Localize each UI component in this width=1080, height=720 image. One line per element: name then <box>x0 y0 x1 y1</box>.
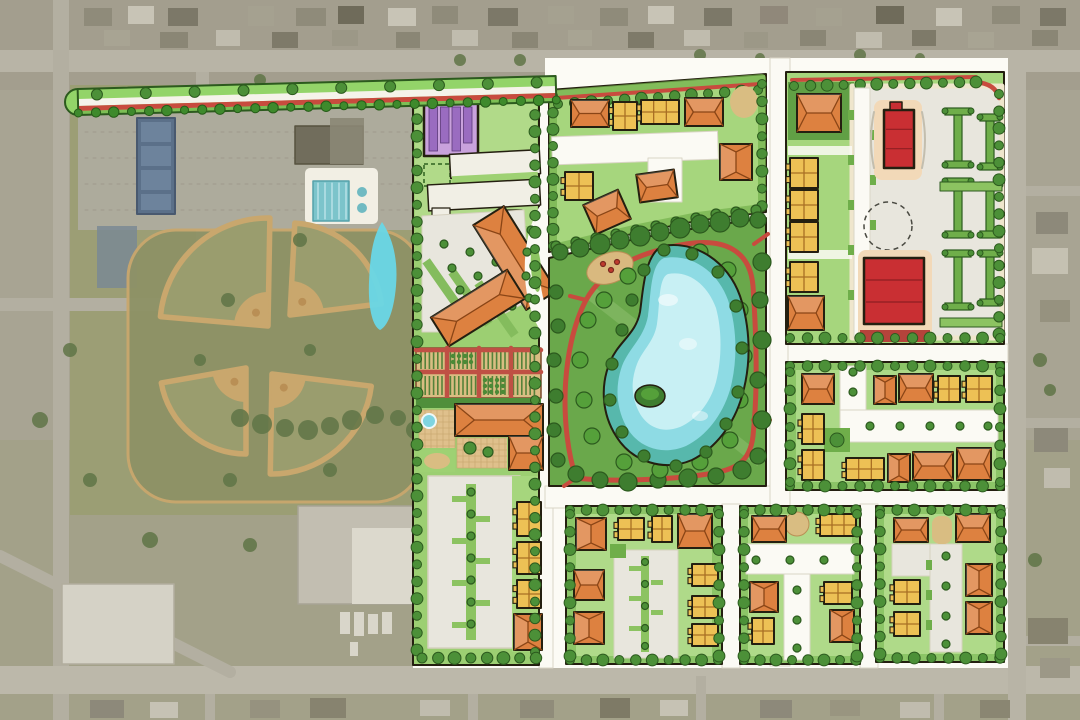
alley-trees-icon <box>984 422 992 430</box>
houses <box>830 610 854 642</box>
aerial-trees-icon <box>1028 553 1042 567</box>
block-d-tree-border-tree-icon <box>785 440 795 450</box>
houses-top-row2 <box>1032 30 1058 46</box>
greenway-tree-icon <box>198 105 207 114</box>
tree-border-tree-icon <box>564 597 576 609</box>
park-trees-icon <box>752 292 768 308</box>
tree-border-tree-icon <box>755 655 765 665</box>
greenway-tree-icon <box>385 81 396 92</box>
park-trees-light-icon <box>584 428 600 444</box>
houses-top-row1 <box>704 8 732 26</box>
houses-top-row1 <box>296 8 326 26</box>
courtyard-trees-icon <box>464 442 476 454</box>
lawn-patch <box>932 516 952 544</box>
block-c-tree-border-tree-icon <box>872 332 884 344</box>
block-d-tree-border-tree-icon <box>784 458 796 470</box>
tree-border-tree-icon <box>851 544 863 556</box>
tree-border-tree-icon <box>714 580 724 590</box>
townhomes <box>934 376 960 402</box>
block-a-tree-border-tree-icon <box>433 652 444 663</box>
spine-stubs <box>476 516 490 522</box>
greenway-tree-icon <box>533 95 543 105</box>
alley-trees-icon <box>793 586 801 594</box>
block-c-tree-border-tree-icon <box>995 90 1004 99</box>
porch-stub <box>513 523 517 529</box>
spine-stubs <box>452 496 466 502</box>
park-trees-icon <box>750 448 766 464</box>
block-a-tree-border-tree-icon <box>530 361 540 371</box>
porch-stub <box>820 586 824 592</box>
paseo-stubs <box>848 110 854 120</box>
greenway-tree-icon <box>145 106 154 115</box>
civic-building-red <box>884 110 914 168</box>
porch-stub <box>798 433 802 439</box>
hedge-cap <box>945 231 971 238</box>
crop-bush <box>501 384 505 388</box>
block-a-tree-border-tree-icon <box>531 144 540 153</box>
block-c-tree-border-tree-icon <box>819 332 831 344</box>
hedge-bar <box>986 253 994 303</box>
block-c-path-trees-tree-icon <box>938 78 947 87</box>
block-a-tree-border-tree-icon <box>412 165 422 175</box>
tree-icon <box>968 232 974 238</box>
spine-trees-icon <box>642 603 649 610</box>
shore-trees-icon <box>712 266 724 278</box>
greenway-tree-icon <box>531 77 542 88</box>
greenway-tree-icon <box>410 99 419 108</box>
block-a-tree-border-tree-icon <box>529 629 541 641</box>
houses <box>571 100 609 127</box>
tree-border-tree-icon <box>803 505 813 515</box>
hedge-bar <box>954 111 962 165</box>
block-a-tree-border-tree-icon <box>530 412 540 422</box>
greenway-tree-icon <box>393 100 401 108</box>
houses-top-row1 <box>388 8 416 26</box>
tree-border-tree-icon <box>740 563 749 572</box>
houses-top-row1 <box>760 6 788 24</box>
tree-border-tree-icon <box>908 652 920 664</box>
tree-border-tree-icon <box>943 505 953 515</box>
block-c-tree-border-tree-icon <box>943 334 952 343</box>
tree-border-tree-icon <box>565 633 575 643</box>
tree-border-tree-icon <box>997 615 1006 624</box>
greenway-tree-icon <box>268 102 278 112</box>
houses-bottom-row <box>600 698 630 718</box>
townhomes <box>842 458 884 480</box>
spine-stubs <box>452 622 466 628</box>
truck-row <box>354 612 364 636</box>
tree-border-tree-icon <box>696 504 708 516</box>
building-body <box>864 258 924 324</box>
houses-top-row2 <box>332 30 358 46</box>
tree-border-tree-icon <box>927 654 936 663</box>
block-c-tree-border-tree-icon <box>994 260 1004 270</box>
greenway-tree-icon <box>357 101 366 110</box>
block-d-tree-border-tree-icon <box>907 361 917 371</box>
block-b-tree-border-tree-icon <box>758 132 767 141</box>
spine-trees-icon <box>467 510 475 518</box>
tree-border-tree-icon <box>738 650 750 662</box>
crop-bush <box>451 360 455 364</box>
aerial-trees-icon <box>63 343 77 357</box>
block-a-tree-border-tree-icon <box>531 194 540 203</box>
alley-trees-icon <box>956 422 964 430</box>
porch-stub <box>688 610 692 616</box>
porch-stub <box>934 381 938 387</box>
porch-stub <box>890 617 894 623</box>
porch-stub <box>688 600 692 606</box>
tree-icon <box>977 114 983 120</box>
tree-border-tree-icon <box>615 506 624 515</box>
block-c-tree-border-tree-icon <box>995 244 1004 253</box>
block-c-path-trees-tree-icon <box>821 79 833 91</box>
tree-border-tree-icon <box>874 543 886 555</box>
block-a-tree-border-tree-icon <box>530 462 540 472</box>
crop-bush <box>463 360 467 364</box>
block-c-tree-border-tree-icon <box>993 122 1005 134</box>
block-d-tree-border-tree-icon <box>786 368 795 377</box>
porch-stub <box>513 509 517 515</box>
block-d-tree-border-tree-icon <box>802 361 812 371</box>
houses <box>752 516 786 542</box>
houses-right-edge <box>1034 428 1068 452</box>
park-trees-icon <box>549 389 563 403</box>
spine-stubs <box>651 610 663 615</box>
tree-border-tree-icon <box>997 510 1006 519</box>
porch-stub <box>688 628 692 634</box>
tree-border-tree-icon <box>664 656 673 665</box>
block-a-tree-border-tree-icon <box>531 245 540 254</box>
greenway-tree-icon <box>336 82 347 93</box>
tree-border-tree-icon <box>738 544 750 556</box>
porch-stub <box>513 548 517 554</box>
park-trees-icon <box>710 212 730 232</box>
park-trees-icon <box>733 461 751 479</box>
shore-trees-icon <box>616 324 628 336</box>
block-d-tree-border-tree-icon <box>960 361 970 371</box>
shore-trees-icon <box>720 418 732 430</box>
spine-stubs <box>452 538 466 544</box>
greenway-tree-icon <box>463 98 472 107</box>
block-d-tree-border-tree-icon <box>786 423 795 432</box>
spine-trees-icon <box>642 559 649 566</box>
porch-stub <box>561 189 565 195</box>
spine-stubs <box>629 596 641 601</box>
block-c-tree-border-tree-icon <box>977 332 989 344</box>
crop-bush <box>495 390 499 394</box>
hedge-cap <box>945 161 971 168</box>
pitchers-mound <box>298 298 306 306</box>
aerial-trees-icon <box>366 406 384 424</box>
block-a-tree-border-tree-icon <box>411 336 423 348</box>
houses-top-row2 <box>968 32 994 48</box>
park-trees-icon <box>619 473 637 491</box>
tree-border-tree-icon <box>566 563 575 572</box>
porch-stub <box>786 228 790 234</box>
shore-trees-icon <box>670 460 682 472</box>
tree-border-tree-icon <box>631 505 641 515</box>
aerial-trees-icon <box>342 410 362 430</box>
tree-icon <box>968 304 974 310</box>
houses-top-row1 <box>432 6 458 24</box>
tennis-court-pads <box>141 146 171 166</box>
houses-top-row2 <box>452 30 478 46</box>
tree-border-tree-icon <box>851 650 863 662</box>
liner-building <box>427 179 540 211</box>
block-d-tree-border-tree-icon <box>943 362 952 371</box>
block-a-tree-border-tree-icon <box>530 160 540 170</box>
greenway-tree-icon <box>181 106 189 114</box>
tree-border-tree-icon <box>715 510 724 519</box>
townhomes <box>820 582 852 604</box>
tree-border-tree-icon <box>739 580 749 590</box>
park-trees-icon <box>571 239 589 257</box>
block-d-tree-border-tree-icon <box>819 480 831 492</box>
play-equipment-icon <box>615 260 620 265</box>
block-e2-alley <box>746 544 854 574</box>
block-c-tree-border-tree-icon <box>907 333 917 343</box>
tree-border-tree-icon <box>852 633 862 643</box>
crop-bush <box>501 390 505 394</box>
block-a-tree-border-tree-icon <box>531 496 540 505</box>
block-a-tree-border-tree-icon <box>529 327 541 339</box>
hedge-bar <box>986 117 994 167</box>
spine-trees-icon <box>467 620 475 628</box>
tree-border-tree-icon <box>680 655 690 665</box>
houses <box>750 582 778 612</box>
block-b-tree-border-tree-icon <box>757 149 767 159</box>
block-c-tree-border-tree-icon <box>994 312 1004 322</box>
tree-border-tree-icon <box>803 655 813 665</box>
tree-border-tree-icon <box>852 527 862 537</box>
block-c-tree-border-tree-icon <box>891 334 900 343</box>
block-b-tree-border-tree-icon <box>549 142 558 151</box>
porch-stub <box>561 178 565 184</box>
tree-border-tree-icon <box>874 596 886 608</box>
houses <box>894 518 928 542</box>
tree-border-tree-icon <box>978 654 987 663</box>
block-a-tree-border-tree-icon <box>531 295 540 304</box>
block-b-path-trees-tree-icon <box>704 89 713 98</box>
block-a-tree-border-tree-icon <box>417 653 427 663</box>
block-d-tree-border-tree-icon <box>977 480 989 492</box>
houses <box>899 374 933 402</box>
houses-bottom-row <box>420 700 450 716</box>
street-bottom <box>0 666 1080 694</box>
park-trees-icon <box>753 331 771 349</box>
park-trees-icon <box>630 226 650 246</box>
park-trees-icon <box>708 468 724 484</box>
block-a-tree-border-tree-icon <box>530 563 540 573</box>
block-d-tree-border-tree-icon <box>872 480 884 492</box>
tree-icon <box>942 250 948 256</box>
block-a-tree-border-tree-icon <box>497 652 510 665</box>
tree-border-tree-icon <box>581 655 591 665</box>
block-a-tree-border-tree-icon <box>412 576 422 586</box>
spine-stubs <box>476 558 490 564</box>
block-d-tree-border-tree-icon <box>838 362 847 371</box>
block-c-tree-border-tree-icon <box>993 277 1005 289</box>
alley-trees-icon <box>926 422 934 430</box>
block-d-tree-border-tree-icon <box>802 481 812 491</box>
block-b-tree-border-tree-icon <box>548 207 558 217</box>
drive-trees-icon <box>522 272 530 280</box>
park-trees-icon <box>611 231 629 249</box>
block-c-path-trees-tree-icon <box>889 79 898 88</box>
tennis-court-pads <box>141 170 171 190</box>
houses-top-row1 <box>936 8 962 26</box>
roof-bar <box>464 107 473 143</box>
tree-border-tree-icon <box>664 506 673 515</box>
greenway-tree-icon <box>321 101 331 111</box>
tree-border-tree-icon <box>597 654 609 666</box>
spine-stubs <box>476 600 490 606</box>
shore-trees-icon <box>626 294 638 306</box>
porch-stub <box>962 392 966 398</box>
tree-border-tree-icon <box>680 505 690 515</box>
block-b-tree-border-tree-icon <box>547 223 559 235</box>
aerial-trees-icon <box>321 417 339 435</box>
porch-stub <box>820 596 824 602</box>
greenway-tree-icon <box>552 96 560 104</box>
block-b-path-trees-tree-icon <box>719 87 729 97</box>
site-plan-svg <box>0 0 1080 720</box>
greenway-tree-icon <box>162 105 172 115</box>
block-b-tree-border-tree-icon <box>758 80 767 89</box>
tree-border-tree-icon <box>564 544 576 556</box>
tree-border-tree-icon <box>852 580 862 590</box>
houses-top-row2 <box>856 32 882 48</box>
tree-border-tree-icon <box>696 654 708 666</box>
townhomes <box>786 158 818 188</box>
porch-stub <box>798 469 802 475</box>
shore-trees-icon <box>604 394 616 406</box>
pocket-tree <box>830 433 844 447</box>
park-trees-light-icon <box>620 268 636 284</box>
block-c-tree-border-tree-icon <box>993 174 1005 186</box>
block-d-tree-border-tree-icon <box>855 481 865 491</box>
block-b-tree-border-tree-icon <box>548 107 558 117</box>
block-c-path-trees-tree-icon <box>805 80 815 90</box>
greenway-tree-icon <box>109 107 119 117</box>
block-c-tree-border-tree-icon <box>802 333 812 343</box>
park-trees-icon <box>679 469 697 487</box>
block-a-tree-border-tree-icon <box>412 422 422 432</box>
block-a-tree-border-tree-icon <box>411 387 423 399</box>
tree-border-tree-icon <box>851 597 863 609</box>
aerial-trees-icon <box>231 409 249 427</box>
truck-row <box>340 612 350 634</box>
greenway-tree-icon <box>287 84 298 95</box>
tree-border-tree-icon <box>836 656 845 665</box>
townhomes <box>688 564 718 586</box>
block-a-tree-border-tree-icon <box>529 428 541 440</box>
block-a-tree-border-tree-icon <box>529 277 541 289</box>
houses-top-row2 <box>104 30 130 46</box>
master-plan-map <box>0 0 1080 720</box>
block-c-tree-border-tree-icon <box>786 334 795 343</box>
block-d-tree-border-tree-icon <box>784 403 796 415</box>
park-trees-light-icon <box>722 432 738 448</box>
shore-trees-icon <box>700 446 712 458</box>
shore-trees-icon <box>638 450 650 462</box>
park-trees-icon <box>590 234 610 254</box>
houses-bottom-row <box>830 700 860 716</box>
park-trees-icon <box>670 218 690 238</box>
alley-trees-icon <box>752 556 760 564</box>
houses-top-row2 <box>800 30 826 46</box>
street-stub <box>696 676 706 720</box>
roof-bar <box>441 107 450 143</box>
tree-border-tree-icon <box>715 616 724 625</box>
greenway-tree-icon <box>304 102 313 111</box>
greenway-tree-icon <box>140 88 151 99</box>
houses <box>874 376 896 404</box>
park-trees-icon <box>547 353 561 367</box>
tree-border-tree-icon <box>874 648 886 660</box>
block-a-tree-border-tree-icon <box>412 474 422 484</box>
block-c-path-trees-tree-icon <box>954 77 964 87</box>
greenway-tree-icon <box>499 97 507 105</box>
townhomes <box>786 222 818 252</box>
block-d-tree-border-tree-icon <box>785 385 795 395</box>
tree-border-tree-icon <box>713 597 725 609</box>
stub-greens <box>926 620 932 630</box>
greenway-tree-icon <box>215 104 225 114</box>
block-b-tree-border-tree-icon <box>549 192 558 201</box>
tree-border-tree-icon <box>978 506 987 515</box>
aerial-trees-icon <box>221 293 235 307</box>
block-a-tree-border-tree-icon <box>412 114 422 124</box>
tree-border-tree-icon <box>997 562 1006 571</box>
warehouse-b-roof <box>352 528 422 604</box>
porch-stub <box>614 522 618 528</box>
porch-stub <box>688 568 692 574</box>
block-b-tree-border-tree-icon <box>758 184 767 193</box>
roof-bar <box>429 107 438 151</box>
parking-hedge-row <box>940 318 1002 327</box>
townhomes <box>890 580 920 604</box>
park-trees-icon <box>552 244 568 260</box>
tree-border-tree-icon <box>646 654 658 666</box>
tree-border-tree-icon <box>739 527 749 537</box>
tree-border-tree-icon <box>564 650 576 662</box>
porch-stub <box>648 521 652 527</box>
park-trees-icon <box>551 453 565 467</box>
townhomes <box>748 618 774 644</box>
mini-alley <box>788 146 852 155</box>
tree-border-tree-icon <box>615 656 624 665</box>
shore-trees-icon <box>658 244 670 256</box>
shore-trees-icon <box>736 342 748 354</box>
tree-icon <box>977 250 983 256</box>
block-a-tree-border-tree-icon <box>413 611 422 620</box>
block-a-tree-border-tree-icon <box>413 303 422 312</box>
townhomes <box>962 376 992 402</box>
aerial-trees-icon <box>323 463 337 477</box>
block-d-tree-border-tree-icon <box>855 361 865 371</box>
crop-bush <box>463 354 467 358</box>
houses-bottom-row <box>520 700 554 718</box>
finger-trees-icon <box>440 240 448 248</box>
block-a-tree-border-tree-icon <box>530 652 541 663</box>
tree-icon <box>968 162 974 168</box>
porch-stub <box>786 196 790 202</box>
tree-border-tree-icon <box>646 504 658 516</box>
park-trees-icon <box>568 466 584 482</box>
porch-stub <box>786 209 790 215</box>
aerial-trees-icon <box>142 532 158 548</box>
